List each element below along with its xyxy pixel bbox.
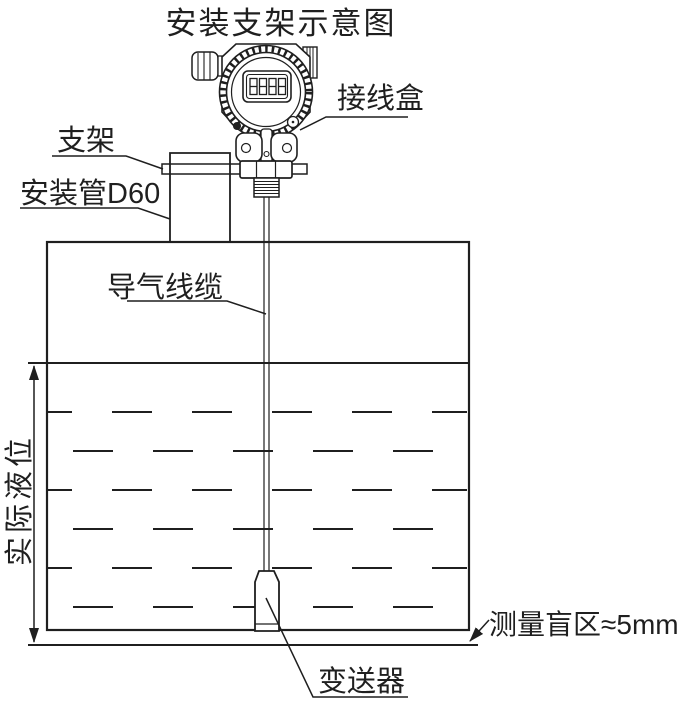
threaded-nipple	[254, 178, 279, 197]
screw-right-dot	[292, 121, 295, 124]
blind-zone-label: 测量盲区≈5mm	[489, 609, 679, 640]
bracket-leader	[52, 156, 163, 169]
tank	[28, 242, 478, 645]
air-cable-label: 导气线缆	[107, 271, 223, 304]
bracket-label: 支架	[57, 124, 115, 157]
actual-level-label: 实际液位	[3, 434, 36, 566]
lcd-display: 8888	[243, 71, 291, 102]
bolt-hole-left-icon	[242, 144, 251, 153]
screw-left-icon	[233, 122, 241, 130]
mounting-pipe	[170, 153, 230, 242]
junction-box-leader	[300, 117, 408, 130]
mounting-pipe-label: 安装管D60	[20, 177, 160, 210]
page-title: 安装支架示意图	[166, 6, 397, 41]
installation-diagram: 安装支架示意图	[0, 0, 700, 708]
junction-box-label: 接线盒	[337, 82, 424, 115]
air-guide-cable	[264, 197, 269, 573]
mounting-yoke	[236, 129, 297, 163]
cable-gland-icon	[192, 52, 226, 80]
diagram-canvas: 安装支架示意图	[0, 0, 700, 708]
bolt-hole-center-icon	[264, 152, 269, 157]
transmitter-label: 变送器	[318, 665, 405, 698]
hex-nut	[240, 161, 292, 178]
bolt-hole-right-icon	[283, 144, 292, 153]
blind-zone-arrow	[470, 620, 489, 641]
